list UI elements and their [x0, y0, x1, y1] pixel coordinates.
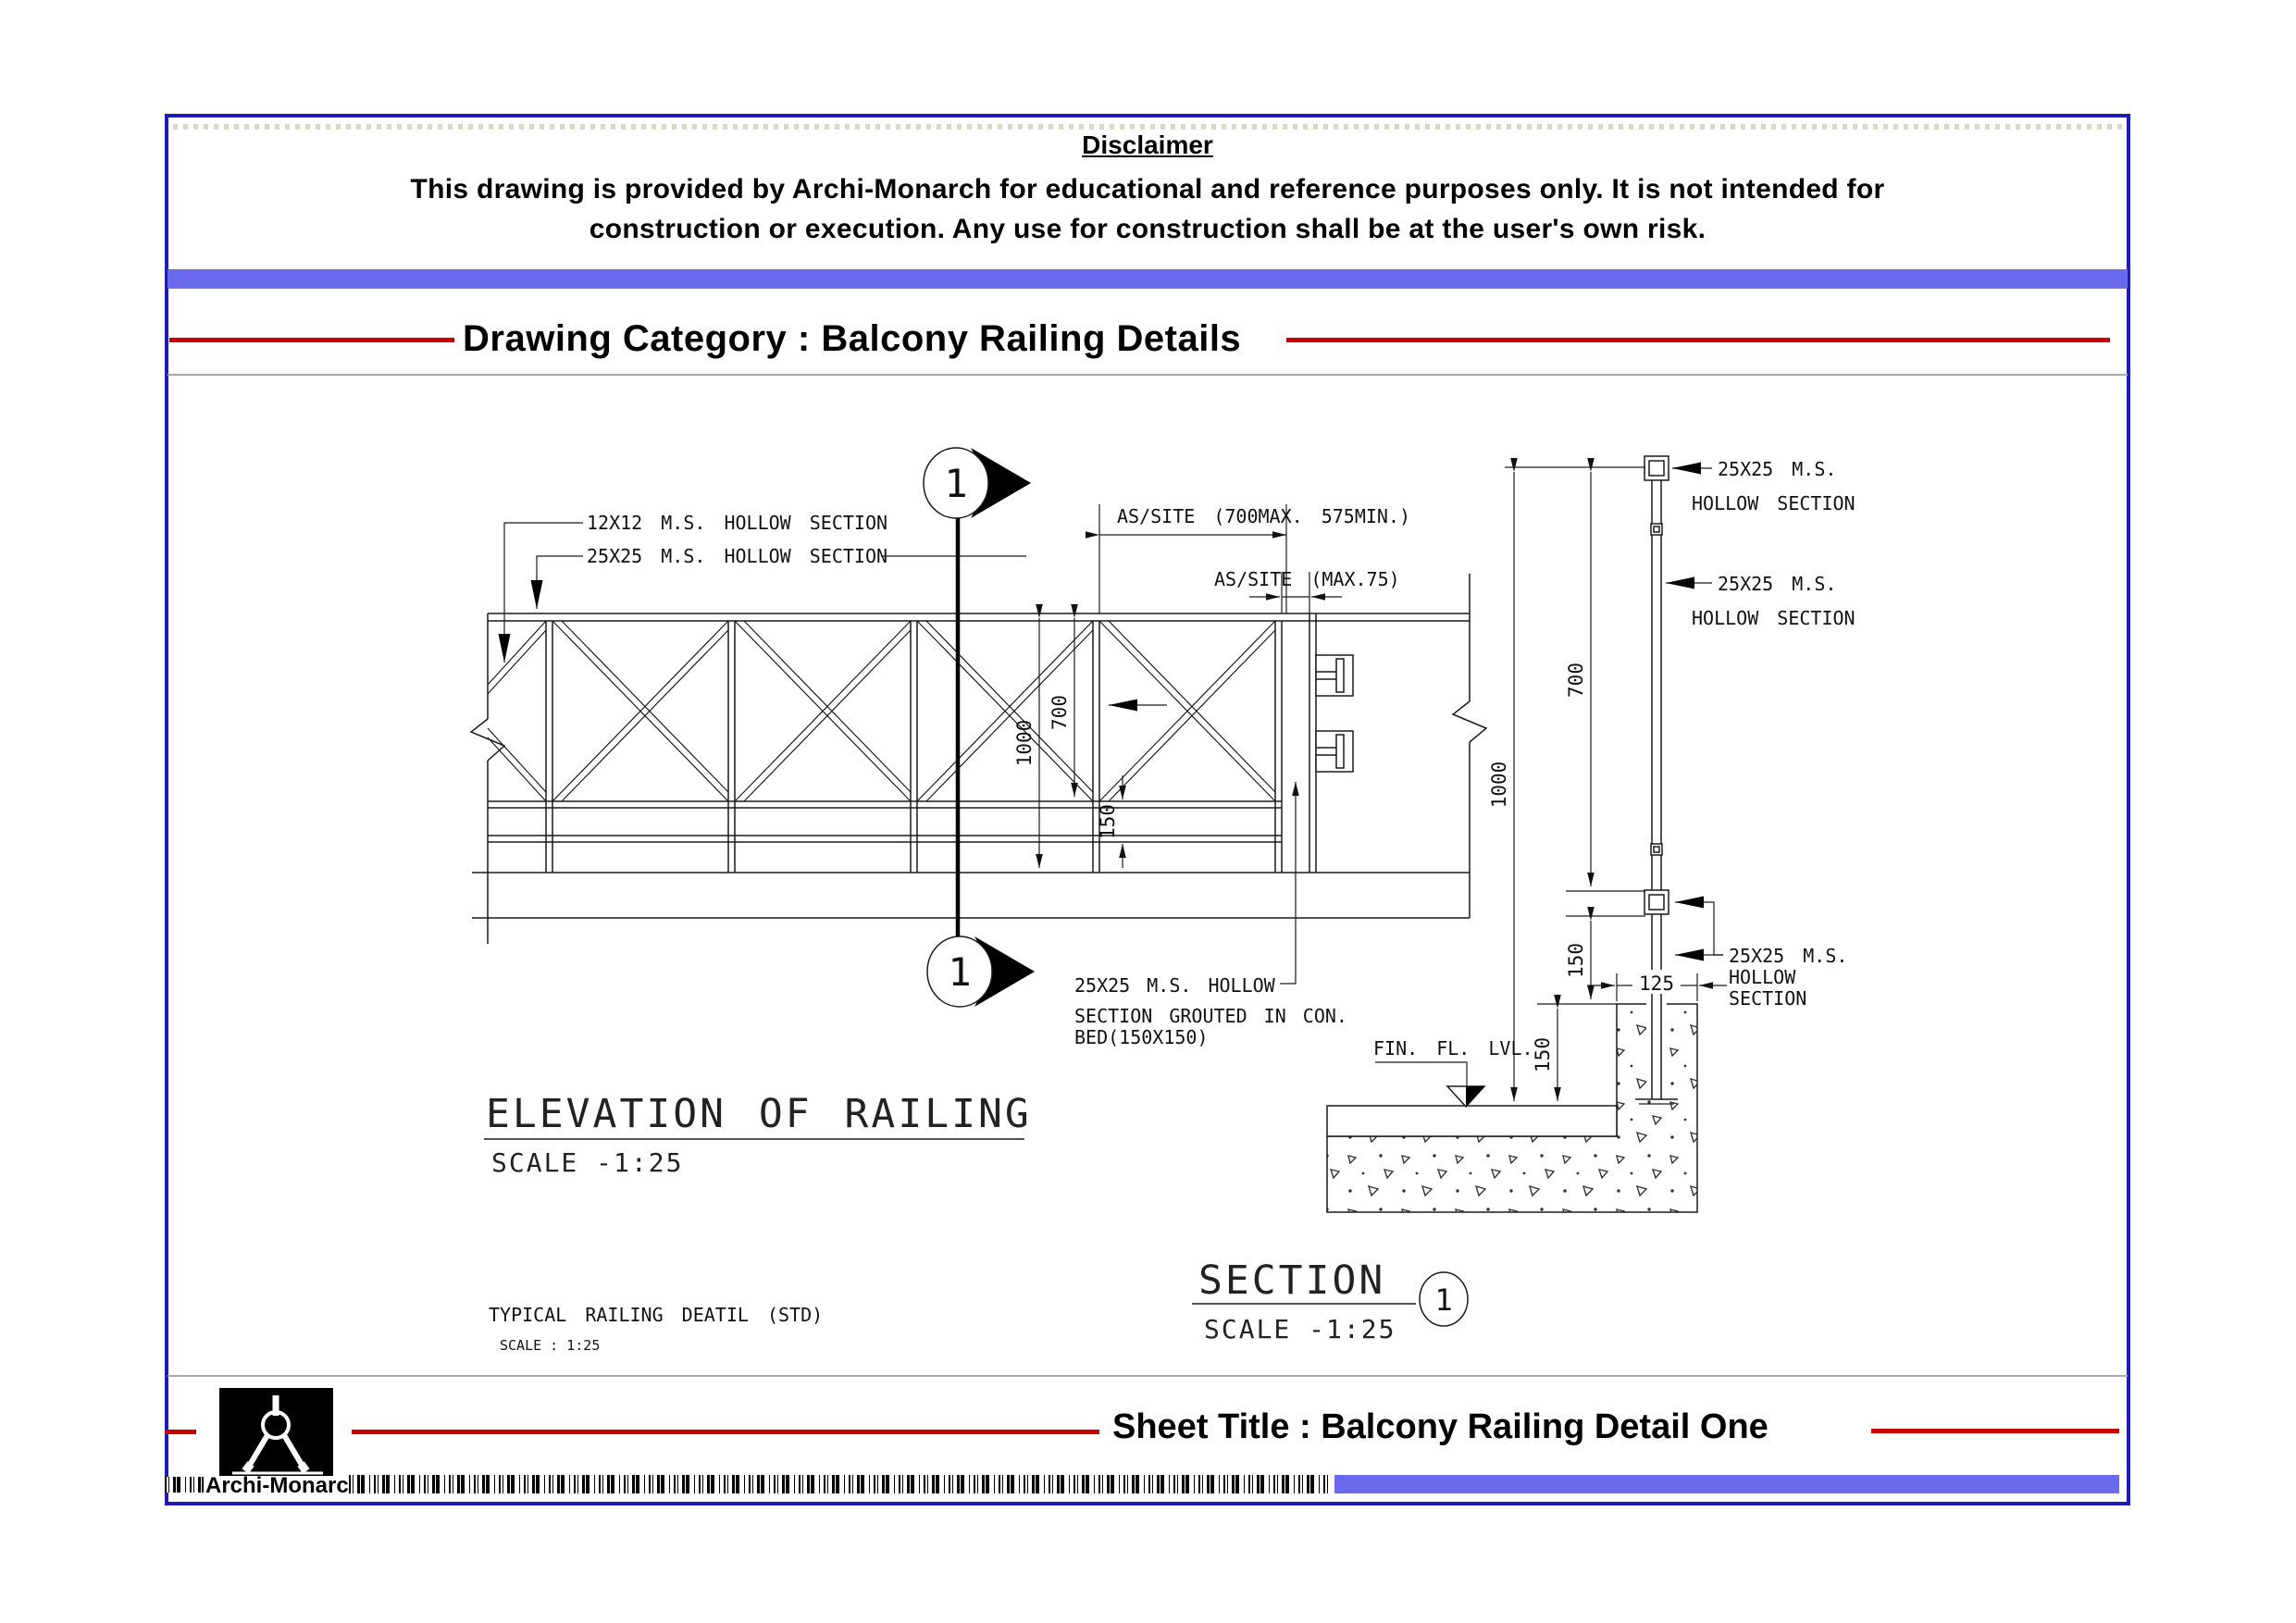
grout-note-line2: SECTION GROUTED IN CON.	[1074, 1005, 1347, 1027]
sheet-title: Sheet Title : Balcony Railing Detail One	[1112, 1407, 1769, 1447]
bottom-blue-bar	[1334, 1475, 2119, 1493]
footnote-scale: SCALE : 1:25	[500, 1337, 600, 1354]
dim-150-elevation: 150	[1097, 804, 1119, 839]
finish-floor-level: FIN. FL. LVL.	[1373, 1037, 1533, 1107]
elevation-title: ELEVATION OF RAILING	[486, 1091, 1032, 1137]
section-marker-top-number: 1	[944, 461, 967, 506]
footer-red-line-right	[1871, 1429, 2119, 1433]
dim-150-lower: 150	[1532, 1037, 1554, 1072]
section-title-marker-number: 1	[1434, 1282, 1452, 1318]
fin-fl-lvl-label: FIN. FL. LVL.	[1373, 1037, 1533, 1059]
elevation-posts	[546, 613, 1316, 873]
dim-125: 125	[1639, 973, 1674, 995]
dim-1000-elevation: 1000	[1013, 720, 1036, 767]
grout-note-line1: 25X25 M.S. HOLLOW	[1074, 974, 1276, 997]
barcode-strip	[349, 1475, 1332, 1493]
barcode-left	[165, 1477, 204, 1493]
label-25x25: 25X25 M.S. HOLLOW SECTION	[587, 545, 887, 567]
label-12x12: 12X12 M.S. HOLLOW SECTION	[587, 512, 887, 534]
dim-end-gap: AS/SITE (MAX.75)	[1214, 568, 1400, 590]
dim-700-elevation: 700	[1049, 695, 1071, 730]
section-marker-bottom-number: 1	[948, 949, 971, 995]
elevation-x-braces	[488, 621, 1275, 801]
elevation-scale: SCALE -1:25	[491, 1147, 683, 1178]
elevation-view: 1 1 12X12 M.S. HOLLOW SECTION 25X25 M.S.…	[471, 448, 1486, 1354]
brand-logo	[219, 1388, 333, 1476]
dim-700-section: 700	[1565, 663, 1587, 698]
grout-note-line3: BED(150X150)	[1074, 1026, 1209, 1048]
section-labels: 25X25 M.S. HOLLOW SECTION 25X25 M.S. HOL…	[1666, 458, 1855, 1010]
cad-drawing: 1 1 12X12 M.S. HOLLOW SECTION 25X25 M.S.…	[0, 0, 2296, 1623]
section-label-base-1: 25X25 M.S.	[1729, 945, 1847, 967]
dim-panel-width: AS/SITE (700MAX. 575MIN.)	[1117, 505, 1410, 527]
section-scale: SCALE -1:25	[1204, 1314, 1396, 1344]
footer-divider	[168, 1375, 2128, 1377]
dim-1000-section: 1000	[1488, 762, 1510, 809]
drawing-sheet: Disclaimer This drawing is provided by A…	[0, 0, 2296, 1623]
brand-name: Archi-Monarch	[205, 1473, 362, 1499]
footer-red-line-mid	[352, 1430, 1099, 1434]
footnote-title: TYPICAL RAILING DEATIL (STD)	[489, 1304, 823, 1326]
section-label-base-2: HOLLOW	[1729, 966, 1796, 988]
concrete	[1327, 1004, 1697, 1212]
section-label-mid-2: HOLLOW SECTION	[1692, 607, 1855, 629]
section-label-mid-1: 25X25 M.S.	[1718, 573, 1836, 595]
floor-slab	[1327, 1106, 1617, 1136]
footer-red-dash-left	[165, 1430, 196, 1434]
section-label-top-1: 25X25 M.S.	[1718, 458, 1836, 480]
section-label-base-3: SECTION	[1729, 987, 1806, 1010]
elevation-labels: 12X12 M.S. HOLLOW SECTION 25X25 M.S. HOL…	[504, 512, 1167, 705]
wall-brackets	[1316, 655, 1353, 772]
section-title: SECTION	[1198, 1258, 1385, 1304]
section-label-top-2: HOLLOW SECTION	[1692, 492, 1855, 514]
compass-icon	[219, 1388, 333, 1476]
dim-150-upper: 150	[1565, 943, 1587, 978]
